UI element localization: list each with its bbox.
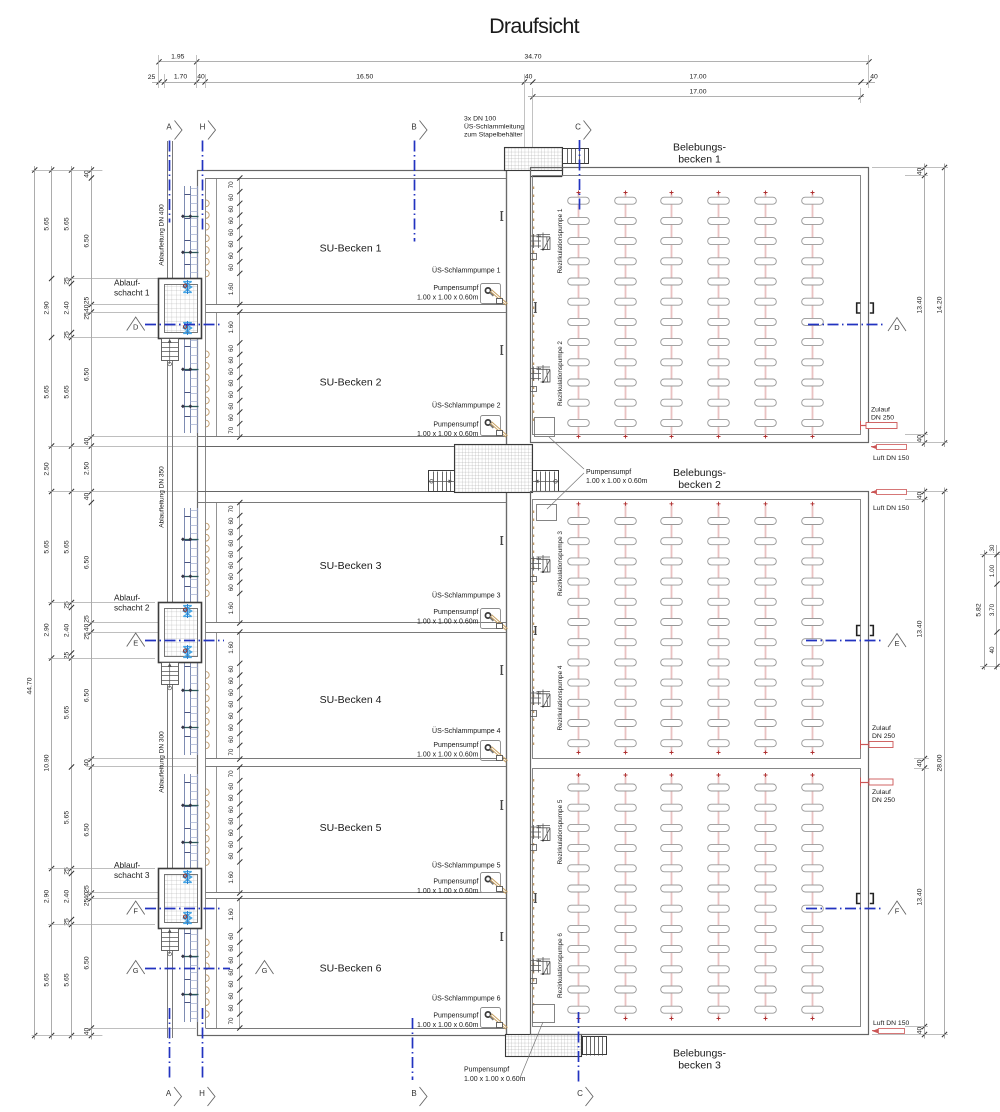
svg-text:1.00: 1.00 — [989, 564, 996, 577]
svg-text:5.65: 5.65 — [44, 973, 51, 986]
svg-text:60: 60 — [228, 391, 235, 399]
svg-text:Belebungs-: Belebungs- — [673, 467, 727, 479]
svg-text:Draufsicht: Draufsicht — [489, 14, 580, 38]
svg-text:60: 60 — [228, 368, 235, 376]
svg-text:60: 60 — [228, 414, 235, 422]
svg-text:zum Stapelbehälter: zum Stapelbehälter — [464, 132, 523, 139]
svg-text:Rezirkulationspumpe 3: Rezirkulationspumpe 3 — [557, 531, 564, 596]
svg-text:5.65: 5.65 — [64, 811, 71, 824]
svg-text:Rezirkulationspumpe 6: Rezirkulationspumpe 6 — [557, 933, 564, 998]
svg-text:40: 40 — [917, 1027, 924, 1035]
svg-text:60: 60 — [228, 735, 235, 743]
svg-text:10.90: 10.90 — [44, 754, 51, 771]
svg-text:40: 40 — [83, 493, 90, 501]
svg-text:Pumpensumpf: Pumpensumpf — [433, 742, 478, 749]
svg-text:3x DN 100: 3x DN 100 — [464, 116, 496, 123]
svg-text:60: 60 — [228, 550, 235, 558]
svg-text:6.50: 6.50 — [83, 689, 90, 702]
svg-text:Zulauf: Zulauf — [872, 789, 891, 796]
svg-text:Rezirkulationspumpe 5: Rezirkulationspumpe 5 — [557, 799, 564, 864]
svg-text:25: 25 — [83, 312, 90, 320]
svg-text:25: 25 — [83, 885, 90, 893]
svg-text:60: 60 — [228, 240, 235, 248]
svg-text:60: 60 — [228, 980, 235, 988]
svg-text:Pumpensumpf: Pumpensumpf — [433, 1013, 478, 1020]
svg-text:5.82: 5.82 — [976, 603, 983, 616]
svg-text:5.65: 5.65 — [64, 540, 71, 553]
svg-text:Rezirkulationspumpe 2: Rezirkulationspumpe 2 — [557, 341, 564, 406]
svg-text:ÜS-Schlammpumpe 2: ÜS-Schlammpumpe 2 — [432, 402, 501, 410]
svg-text:60: 60 — [228, 806, 235, 814]
svg-text:SU-Becken 6: SU-Becken 6 — [320, 963, 382, 975]
svg-text:60: 60 — [228, 724, 235, 732]
svg-text:schacht 1: schacht 1 — [114, 288, 150, 298]
svg-text:ÜS-Schlammpumpe 1: ÜS-Schlammpumpe 1 — [432, 267, 501, 275]
svg-text:A: A — [166, 1089, 172, 1098]
svg-text:70: 70 — [228, 505, 235, 513]
svg-text:G: G — [262, 966, 268, 975]
svg-text:SU-Becken 2: SU-Becken 2 — [320, 377, 382, 389]
svg-text:3.70: 3.70 — [989, 603, 996, 616]
svg-text:1.60: 1.60 — [228, 602, 235, 615]
svg-text:40: 40 — [83, 759, 90, 767]
svg-text:60: 60 — [228, 677, 235, 685]
svg-text:60: 60 — [228, 264, 235, 272]
svg-text:1.60: 1.60 — [228, 641, 235, 654]
svg-text:ÜS-Schlammpumpe 6: ÜS-Schlammpumpe 6 — [432, 995, 501, 1003]
svg-text:60: 60 — [228, 689, 235, 697]
svg-text:60: 60 — [228, 852, 235, 860]
svg-text:40: 40 — [870, 74, 878, 81]
svg-text:Zulauf: Zulauf — [871, 407, 890, 414]
svg-text:1.60: 1.60 — [228, 908, 235, 921]
svg-text:28.00: 28.00 — [937, 754, 944, 771]
svg-text:1.00 x 1.00 x 0.60m: 1.00 x 1.00 x 0.60m — [464, 1076, 526, 1083]
svg-text:B: B — [411, 123, 416, 132]
svg-text:70: 70 — [228, 1017, 235, 1025]
svg-text:70: 70 — [228, 770, 235, 778]
svg-text:60: 60 — [228, 193, 235, 201]
svg-text:60: 60 — [228, 356, 235, 364]
svg-text:DN 250: DN 250 — [871, 415, 894, 422]
svg-text:1.00 x 1.00 x 0.60m: 1.00 x 1.00 x 0.60m — [417, 888, 479, 895]
svg-text:6.50: 6.50 — [83, 234, 90, 247]
svg-text:ÜS-Schlammleitung: ÜS-Schlammleitung — [464, 123, 524, 131]
svg-text:60: 60 — [228, 992, 235, 1000]
svg-text:1.00 x 1.00 x 0.60m: 1.00 x 1.00 x 0.60m — [417, 1022, 479, 1029]
svg-text:60: 60 — [228, 252, 235, 260]
svg-text:1.00 x 1.00 x 0.60m: 1.00 x 1.00 x 0.60m — [417, 431, 479, 438]
svg-text:SU-Becken 1: SU-Becken 1 — [320, 243, 382, 255]
svg-text:1.00 x 1.00 x 0.60m: 1.00 x 1.00 x 0.60m — [586, 478, 648, 485]
svg-text:6.50: 6.50 — [83, 368, 90, 381]
svg-text:SU-Becken 3: SU-Becken 3 — [320, 560, 382, 572]
svg-text:60: 60 — [228, 944, 235, 952]
svg-text:H: H — [200, 123, 206, 132]
svg-text:13.40: 13.40 — [917, 888, 924, 905]
svg-text:5.65: 5.65 — [44, 540, 51, 553]
svg-text:1.60: 1.60 — [228, 282, 235, 295]
svg-text:60: 60 — [228, 956, 235, 964]
svg-text:Zulauf: Zulauf — [872, 725, 891, 732]
svg-text:14.20: 14.20 — [937, 296, 944, 313]
svg-text:2.90: 2.90 — [44, 890, 51, 903]
svg-text:2.90: 2.90 — [44, 301, 51, 314]
svg-text:5.65: 5.65 — [64, 973, 71, 986]
svg-text:A: A — [166, 123, 172, 132]
svg-text:SU-Becken 4: SU-Becken 4 — [320, 694, 382, 706]
svg-text:60: 60 — [228, 217, 235, 225]
svg-text:2.50: 2.50 — [83, 462, 90, 475]
svg-text:5.65: 5.65 — [44, 217, 51, 230]
svg-text:D: D — [894, 323, 900, 332]
svg-text:60: 60 — [228, 517, 235, 525]
svg-text:C: C — [577, 1089, 583, 1098]
svg-text:becken 3: becken 3 — [678, 1060, 721, 1072]
svg-text:25: 25 — [83, 632, 90, 640]
svg-text:Rezirkulationspumpe 4: Rezirkulationspumpe 4 — [557, 665, 564, 730]
svg-text:25: 25 — [83, 615, 90, 623]
svg-text:60: 60 — [228, 402, 235, 410]
svg-text:1.60: 1.60 — [228, 871, 235, 884]
svg-text:70: 70 — [228, 181, 235, 189]
svg-text:6.50: 6.50 — [83, 556, 90, 569]
svg-text:44.70: 44.70 — [27, 677, 34, 694]
svg-text:70: 70 — [228, 426, 235, 434]
svg-text:Rezirkulationspumpe 1: Rezirkulationspumpe 1 — [557, 208, 564, 273]
svg-text:becken 2: becken 2 — [678, 479, 721, 491]
svg-text:2.40: 2.40 — [64, 624, 71, 637]
svg-text:Ablaufleitung DN 350: Ablaufleitung DN 350 — [159, 466, 166, 528]
svg-text:40: 40 — [83, 170, 90, 178]
svg-text:40: 40 — [917, 492, 924, 500]
svg-text:Pumpensumpf: Pumpensumpf — [433, 609, 478, 616]
svg-text:40: 40 — [917, 168, 924, 176]
svg-text:60: 60 — [228, 584, 235, 592]
svg-text:Luft DN 150: Luft DN 150 — [873, 505, 909, 512]
svg-text:34.70: 34.70 — [524, 53, 541, 60]
svg-text:E: E — [133, 639, 138, 648]
svg-text:Pumpensumpf: Pumpensumpf — [433, 879, 478, 886]
svg-text:60: 60 — [228, 932, 235, 940]
svg-text:25: 25 — [83, 899, 90, 907]
svg-text:Ablauf-: Ablauf- — [114, 593, 141, 603]
svg-text:1.95: 1.95 — [171, 53, 184, 60]
svg-text:1.00 x 1.00 x 0.60m: 1.00 x 1.00 x 0.60m — [417, 752, 479, 759]
svg-text:60: 60 — [228, 841, 235, 849]
svg-text:25: 25 — [148, 74, 156, 81]
svg-text:1.70: 1.70 — [174, 74, 187, 81]
svg-text:60: 60 — [228, 829, 235, 837]
svg-text:SU-Becken 5: SU-Becken 5 — [320, 822, 382, 834]
svg-text:40: 40 — [197, 74, 205, 81]
svg-text:Belebungs-: Belebungs- — [673, 1048, 727, 1060]
svg-text:ÜS-Schlammpumpe 3: ÜS-Schlammpumpe 3 — [432, 592, 501, 600]
svg-text:2.40: 2.40 — [64, 890, 71, 903]
svg-text:60: 60 — [228, 205, 235, 213]
svg-text:13.40: 13.40 — [917, 296, 924, 313]
svg-text:Ablaufleitung DN 400: Ablaufleitung DN 400 — [159, 204, 166, 266]
svg-text:1.00 x 1.00 x 0.60m: 1.00 x 1.00 x 0.60m — [417, 295, 479, 302]
svg-text:25: 25 — [64, 652, 71, 660]
svg-text:60: 60 — [228, 379, 235, 387]
svg-text:60: 60 — [228, 573, 235, 581]
svg-text:60: 60 — [228, 345, 235, 353]
svg-text:G: G — [133, 966, 139, 975]
svg-text:1.60: 1.60 — [228, 321, 235, 334]
svg-text:Ablaufleitung DN 300: Ablaufleitung DN 300 — [159, 731, 166, 793]
svg-text:E: E — [894, 639, 899, 648]
svg-text:B: B — [411, 1089, 416, 1098]
svg-text:F: F — [133, 907, 138, 916]
svg-text:60: 60 — [228, 700, 235, 708]
svg-text:2.90: 2.90 — [44, 623, 51, 636]
svg-text:2.40: 2.40 — [64, 301, 71, 314]
svg-text:Pumpensumpf: Pumpensumpf — [464, 1067, 509, 1074]
svg-text:60: 60 — [228, 539, 235, 547]
svg-text:6.50: 6.50 — [83, 956, 90, 969]
svg-text:5.65: 5.65 — [64, 385, 71, 398]
svg-text:schacht 3: schacht 3 — [114, 870, 150, 880]
svg-text:Luft DN 150: Luft DN 150 — [873, 455, 909, 462]
svg-text:40: 40 — [525, 74, 533, 81]
svg-text:schacht 2: schacht 2 — [114, 603, 150, 613]
svg-text:DN 250: DN 250 — [872, 797, 895, 804]
svg-text:60: 60 — [228, 817, 235, 825]
svg-text:25: 25 — [83, 297, 90, 305]
svg-text:F: F — [895, 907, 900, 916]
svg-text:40: 40 — [83, 624, 90, 632]
svg-text:6.50: 6.50 — [83, 823, 90, 836]
svg-text:Ablauf-: Ablauf- — [114, 860, 141, 870]
svg-text:Pumpensumpf: Pumpensumpf — [586, 469, 631, 476]
svg-text:2.50: 2.50 — [44, 462, 51, 475]
svg-text:5.65: 5.65 — [44, 385, 51, 398]
svg-text:60: 60 — [228, 528, 235, 536]
svg-text:60: 60 — [228, 665, 235, 673]
svg-text:70: 70 — [228, 748, 235, 756]
svg-text:60: 60 — [228, 228, 235, 236]
svg-text:Pumpensumpf: Pumpensumpf — [433, 285, 478, 292]
svg-text:.30: .30 — [989, 544, 996, 553]
svg-text:60: 60 — [228, 562, 235, 570]
svg-text:Pumpensumpf: Pumpensumpf — [433, 422, 478, 429]
svg-text:40: 40 — [917, 435, 924, 443]
svg-text:40: 40 — [83, 304, 90, 312]
svg-text:60: 60 — [228, 1004, 235, 1012]
svg-text:16.50: 16.50 — [356, 74, 373, 81]
svg-text:60: 60 — [228, 794, 235, 802]
svg-text:D: D — [133, 323, 139, 332]
svg-text:17.00: 17.00 — [689, 74, 706, 81]
svg-text:C: C — [575, 123, 581, 132]
svg-text:5.65: 5.65 — [64, 217, 71, 230]
svg-text:ÜS-Schlammpumpe 4: ÜS-Schlammpumpe 4 — [432, 727, 501, 735]
svg-text:DN 250: DN 250 — [872, 733, 895, 740]
svg-text:40: 40 — [83, 438, 90, 446]
svg-text:Belebungs-: Belebungs- — [673, 142, 727, 154]
svg-text:Luft DN 150: Luft DN 150 — [873, 1020, 909, 1027]
svg-text:60: 60 — [228, 712, 235, 720]
svg-text:Ablauf-: Ablauf- — [114, 278, 141, 288]
svg-text:H: H — [199, 1089, 205, 1098]
svg-text:1.00 x 1.00 x 0.60m: 1.00 x 1.00 x 0.60m — [417, 619, 479, 626]
svg-text:13.40: 13.40 — [917, 620, 924, 637]
svg-text:becken 1: becken 1 — [678, 154, 721, 166]
svg-text:ÜS-Schlammpumpe 5: ÜS-Schlammpumpe 5 — [432, 862, 501, 870]
svg-text:60: 60 — [228, 782, 235, 790]
svg-text:40: 40 — [989, 646, 996, 654]
svg-text:40: 40 — [917, 759, 924, 767]
svg-text:5.65: 5.65 — [64, 706, 71, 719]
svg-text:17.00: 17.00 — [689, 89, 706, 96]
